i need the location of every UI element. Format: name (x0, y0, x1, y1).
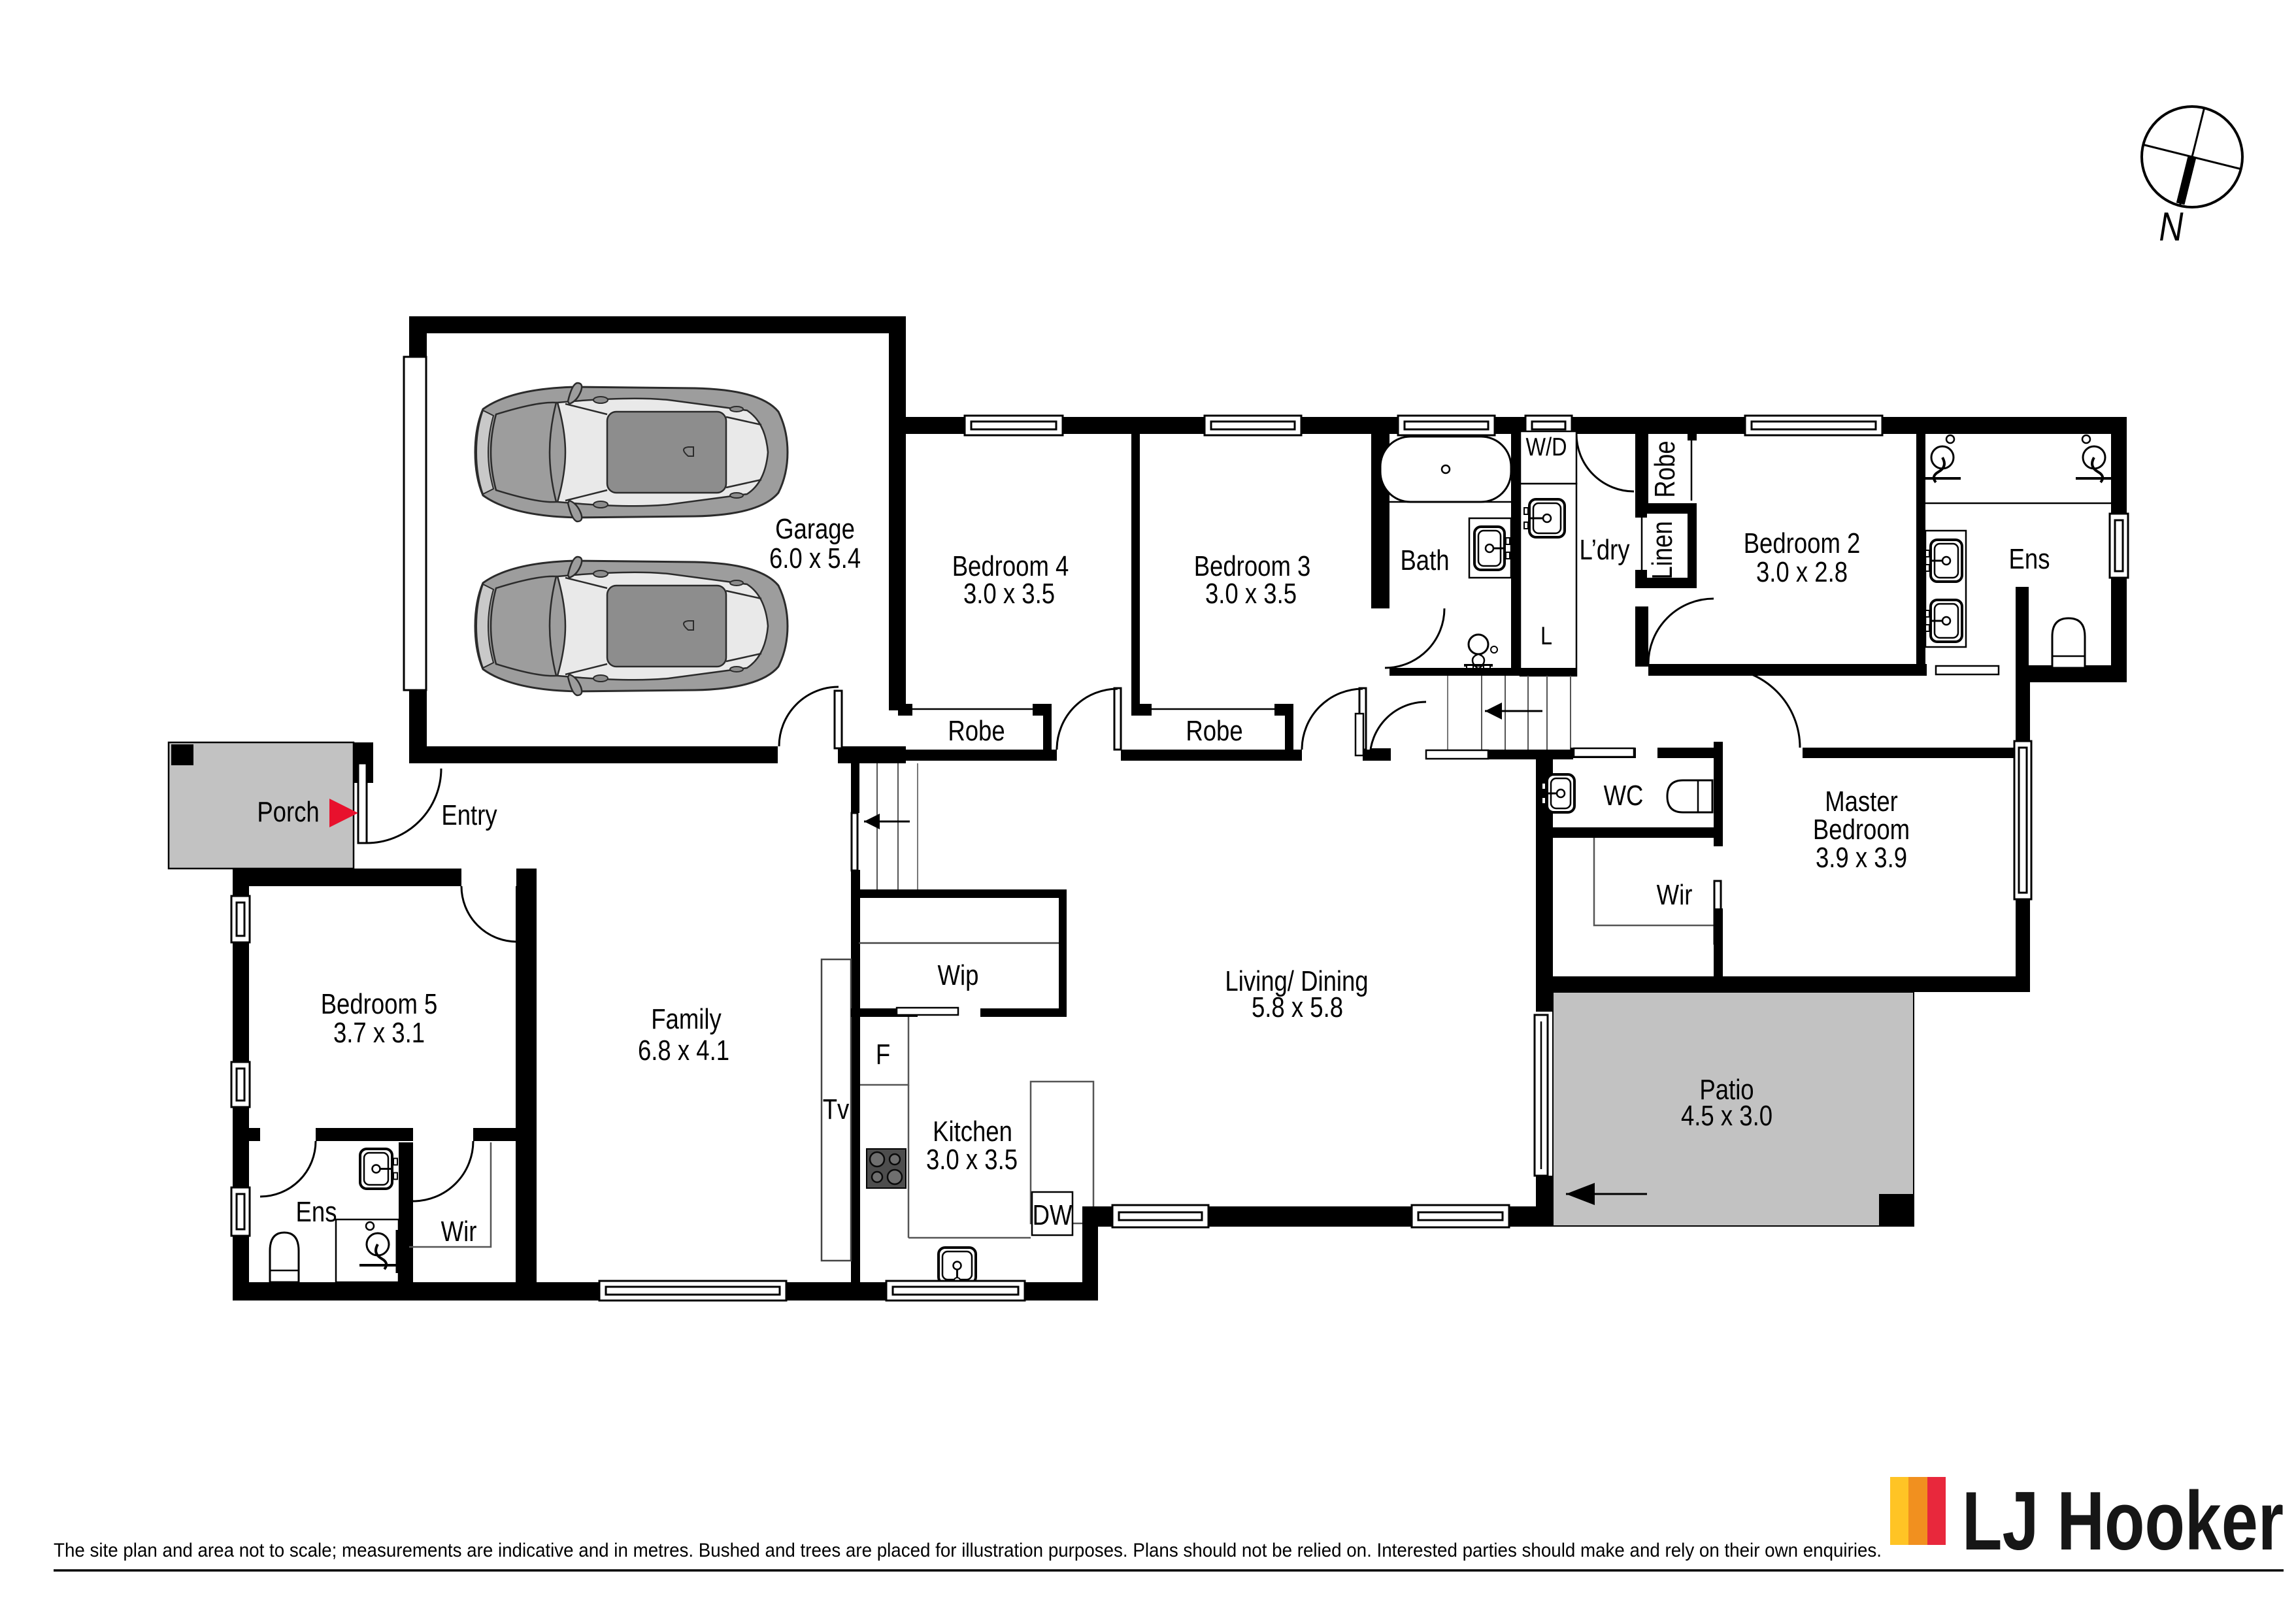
svg-text:5.8 x 5.8: 5.8 x 5.8 (1252, 991, 1343, 1023)
svg-text:L’dry: L’dry (1579, 533, 1630, 566)
svg-text:Bath: Bath (1400, 544, 1449, 576)
svg-text:3.9 x 3.9: 3.9 x 3.9 (1816, 841, 1907, 874)
svg-text:Wir: Wir (441, 1215, 477, 1248)
svg-text:3.0 x 3.5: 3.0 x 3.5 (1205, 577, 1297, 610)
svg-text:3.0 x 2.8: 3.0 x 2.8 (1756, 555, 1848, 588)
svg-text:Robe: Robe (1648, 440, 1681, 497)
svg-text:Porch: Porch (257, 795, 319, 828)
svg-text:The site plan and area not to: The site plan and area not to scale; mea… (54, 1540, 1882, 1561)
svg-text:Ens: Ens (2009, 542, 2050, 575)
svg-text:Entry: Entry (441, 799, 497, 831)
svg-text:Family: Family (651, 1003, 722, 1035)
svg-text:Wir: Wir (1657, 878, 1693, 911)
svg-text:Tv: Tv (823, 1093, 850, 1125)
svg-text:Robe: Robe (948, 714, 1005, 747)
svg-text:3.7 x 3.1: 3.7 x 3.1 (333, 1016, 425, 1049)
svg-text:LJ Hooker: LJ Hooker (1962, 1474, 2284, 1567)
svg-text:Bedroom 2: Bedroom 2 (1744, 527, 1861, 559)
svg-text:DW: DW (1033, 1199, 1073, 1231)
svg-text:W/D: W/D (1526, 433, 1567, 461)
svg-text:L: L (1540, 621, 1552, 650)
svg-text:Wip: Wip (938, 959, 979, 991)
svg-text:3.0 x 3.5: 3.0 x 3.5 (963, 577, 1055, 610)
svg-text:3.0 x 3.5: 3.0 x 3.5 (926, 1143, 1018, 1176)
svg-text:4.5 x 3.0: 4.5 x 3.0 (1681, 1099, 1772, 1132)
svg-text:WC: WC (1604, 779, 1644, 812)
svg-text:Ens: Ens (296, 1195, 337, 1228)
svg-text:Garage: Garage (775, 512, 855, 545)
svg-text:F: F (876, 1038, 890, 1070)
svg-text:N: N (2159, 205, 2184, 250)
svg-text:6.8 x 4.1: 6.8 x 4.1 (638, 1034, 729, 1067)
svg-text:6.0 x 5.4: 6.0 x 5.4 (769, 542, 861, 574)
svg-text:Linen: Linen (1646, 521, 1678, 579)
svg-text:Bedroom 5: Bedroom 5 (321, 987, 438, 1020)
svg-text:Robe: Robe (1186, 714, 1242, 747)
